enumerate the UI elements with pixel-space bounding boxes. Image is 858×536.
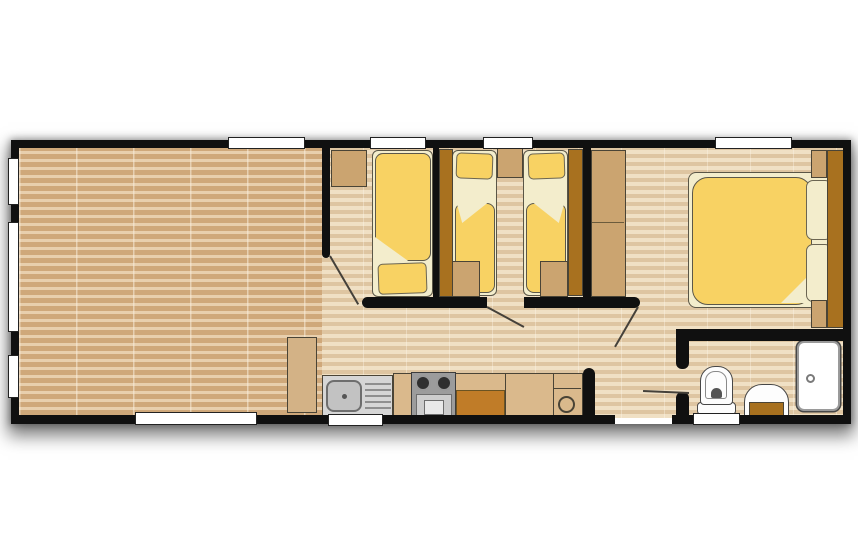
water-heater-circle <box>558 396 575 413</box>
twin-bed-right-pillow <box>528 152 566 179</box>
single-bed <box>372 150 433 297</box>
wall-hall-bedroom-twin-left <box>439 297 487 308</box>
worktop-inset <box>456 390 505 416</box>
twin-bed-left-pillow <box>456 152 494 179</box>
bedside-cabinet-twin <box>497 148 523 178</box>
master-nightstand-bottom <box>811 300 827 328</box>
burner-left <box>415 375 431 391</box>
double-bed-duvet <box>692 177 812 305</box>
worktop-divider-2 <box>553 374 554 415</box>
window-top-living <box>228 137 305 149</box>
single-bed-pillow <box>377 262 427 295</box>
living-area-floor <box>19 146 322 418</box>
wall-hall-bedroom-twin-right <box>524 297 640 308</box>
shower-cubicle <box>797 341 840 411</box>
wall-bathroom-left-upper <box>676 341 689 369</box>
double-bed <box>688 172 833 308</box>
wardrobe-two-section <box>591 150 626 297</box>
floor-plan-canvas <box>0 0 858 536</box>
window-bottom-bathroom <box>693 413 740 425</box>
exterior-wall-right <box>843 140 851 424</box>
wall-bedroom-single-twin <box>433 148 439 308</box>
sink-drain-dot <box>342 394 347 399</box>
toilet-bowl <box>700 366 733 405</box>
shower-handle <box>806 374 815 383</box>
window-left-upper <box>8 158 19 205</box>
kitchen-sink-unit <box>322 375 393 416</box>
vanity-cabinet <box>749 402 784 416</box>
wall-kitchen-entrance <box>583 368 595 424</box>
worktop-divider-1 <box>505 374 506 415</box>
side-wardrobe-left-twin <box>439 149 453 297</box>
storage-cabinet-bedroom-single <box>331 150 367 187</box>
oven-door <box>424 400 444 415</box>
kitchen-tall-cabinet <box>287 337 317 413</box>
wall-bedroom-twin-master <box>583 148 591 308</box>
foot-cabinet-twin-right <box>540 261 568 297</box>
window-bottom-living <box>135 412 257 425</box>
wall-bathroom-top <box>676 329 851 341</box>
window-top-bedroom-single <box>370 137 426 149</box>
window-bottom-kitchen-sink <box>328 414 383 426</box>
window-top-bedroom-twin <box>483 137 533 149</box>
toilet-hinge <box>711 388 722 398</box>
cooker <box>411 372 456 417</box>
window-left-lower <box>8 355 19 398</box>
wall-hall-bedroom-single <box>362 297 433 308</box>
wall-living-bedroom-single <box>322 148 330 258</box>
side-wardrobe-right-twin <box>568 149 583 296</box>
exterior-wall-bottom-left <box>11 415 615 424</box>
worktop-divider-3 <box>553 388 581 389</box>
wall-bathroom-left-lower <box>676 392 689 424</box>
sink-drainer <box>365 383 391 411</box>
burner-right <box>436 375 452 391</box>
window-left-middle <box>8 222 19 332</box>
window-top-master <box>715 137 792 149</box>
wardrobe-shelf-divider <box>592 222 624 223</box>
master-headboard <box>827 150 844 328</box>
master-nightstand-top <box>811 150 827 178</box>
foot-cabinet-twin-left <box>452 261 480 297</box>
